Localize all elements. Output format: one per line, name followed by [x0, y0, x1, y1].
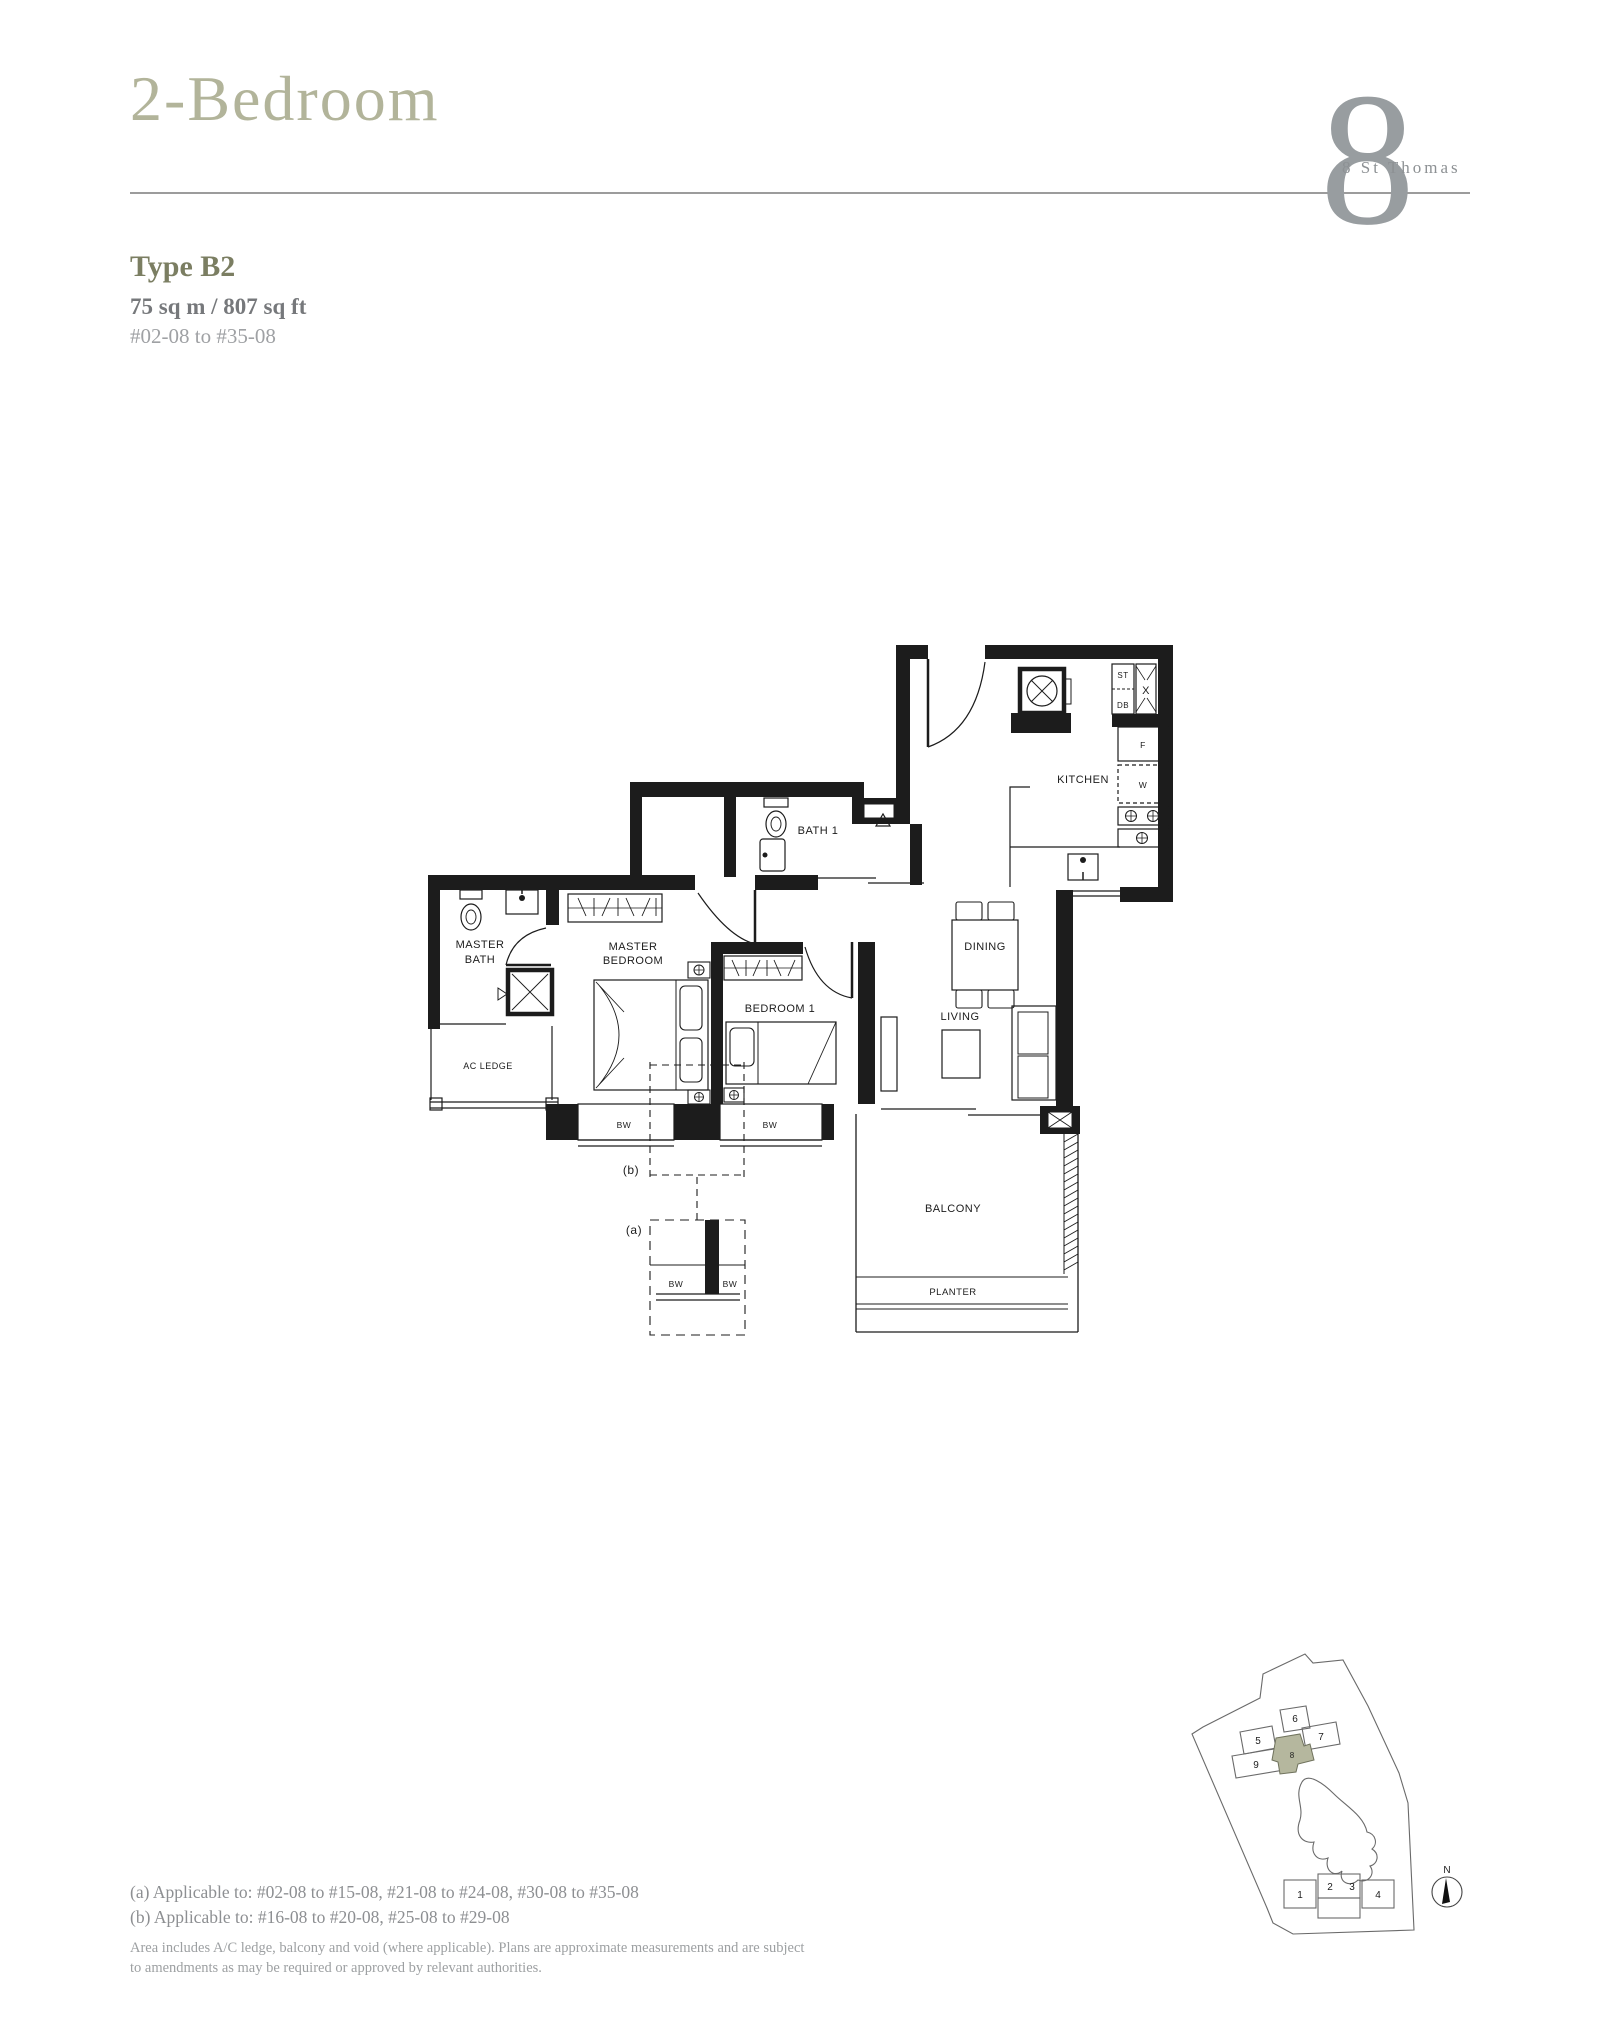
detail-a-label: (a)	[626, 1223, 642, 1237]
master-bedroom-furniture	[568, 894, 710, 1104]
bw-label-bedroom1: BW	[763, 1120, 778, 1130]
balcony	[856, 1112, 1078, 1332]
unit-area-label: 75 sq m / 807 sq ft	[130, 294, 306, 320]
dining-label: DINING	[964, 941, 1006, 953]
bw-label-master: BW	[617, 1120, 632, 1130]
unit-info: Type B2 75 sq m / 807 sq ft #02-08 to #3…	[130, 250, 306, 349]
site-pool	[1298, 1778, 1377, 1883]
sofa	[1012, 1006, 1056, 1100]
site-unit-9-label: 9	[1253, 1760, 1259, 1771]
disclaimer-line-2: to amendments as may be required or appr…	[130, 1958, 804, 1978]
page-title: 2-Bedroom	[130, 62, 440, 136]
db-label: DB	[1117, 701, 1129, 710]
project-logo: 8 8 St Thomas	[1312, 70, 1512, 270]
bath1-label: BATH 1	[798, 825, 839, 837]
master-bath-label-2: BATH	[465, 954, 496, 966]
bed-single	[726, 1022, 836, 1084]
counter	[1010, 787, 1120, 887]
site-unit-8-label: 8	[1290, 1751, 1295, 1760]
site-unit-7-label: 7	[1318, 1732, 1324, 1743]
living-label: LIVING	[940, 1011, 979, 1023]
site-plan: 5 6 7 9 1 2 3 4 8 N	[1180, 1630, 1510, 2020]
detail-b-label: (b)	[623, 1163, 639, 1177]
bw-label-detail-right: BW	[723, 1279, 738, 1289]
bedroom1-label: BEDROOM 1	[745, 1003, 816, 1015]
coffee-table	[942, 1030, 980, 1078]
site-unit-6-label: 6	[1292, 1714, 1298, 1725]
kitchen-label: KITCHEN	[1057, 774, 1109, 786]
tv-console	[881, 1017, 897, 1091]
logo-wordmark: 8 St Thomas	[1342, 158, 1461, 178]
applicability-notes: (a) Applicable to: #02-08 to #15-08, #21…	[130, 1880, 639, 1931]
disclaimer-line-1: Area includes A/C ledge, balcony and voi…	[130, 1938, 804, 1958]
site-unit-3-label: 3	[1349, 1882, 1355, 1893]
fridge-label: F	[1140, 740, 1146, 750]
bw-label-detail-left: BW	[669, 1279, 684, 1289]
site-unit-4-label: 4	[1375, 1890, 1381, 1901]
note-line-a: (a) Applicable to: #02-08 to #15-08, #21…	[130, 1880, 639, 1905]
site-unit-1-label: 1	[1297, 1890, 1303, 1901]
ac-ledge-label: AC LEDGE	[463, 1061, 513, 1071]
master-bedroom-label-1: MASTER	[609, 941, 658, 953]
floor-plan: KITCHEN BATH 1 MASTER BATH MASTER BEDROO…	[428, 632, 1180, 1344]
site-unit-2-label: 2	[1327, 1882, 1333, 1893]
room-labels: KITCHEN BATH 1 MASTER BATH MASTER BEDROO…	[456, 671, 1151, 1298]
balcony-label: BALCONY	[925, 1203, 981, 1215]
disclaimer: Area includes A/C ledge, balcony and voi…	[130, 1938, 804, 1979]
north-label: N	[1443, 1865, 1450, 1876]
note-line-b: (b) Applicable to: #16-08 to #20-08, #25…	[130, 1905, 639, 1930]
master-bedroom-label-2: BEDROOM	[603, 955, 663, 967]
washer-label: W	[1139, 780, 1148, 790]
shaft-label: X	[1142, 685, 1150, 697]
header-divider	[130, 192, 1470, 194]
unit-type-label: Type B2	[130, 250, 306, 284]
compass-needle	[1442, 1878, 1450, 1904]
site-unit-5-label: 5	[1255, 1736, 1261, 1747]
detail-annotations	[650, 1062, 745, 1335]
wall-niche	[864, 804, 894, 818]
planter-label: PLANTER	[929, 1287, 976, 1298]
site-lower-stub	[1318, 1898, 1360, 1918]
master-bath-label-1: MASTER	[456, 939, 505, 951]
bed	[594, 980, 708, 1090]
brochure-page: 2-Bedroom 8 8 St Thomas Type B2 75 sq m …	[0, 0, 1600, 2042]
store-label: ST	[1117, 671, 1128, 680]
dining-furniture	[952, 902, 1018, 1008]
unit-stack-label: #02-08 to #35-08	[130, 324, 306, 349]
